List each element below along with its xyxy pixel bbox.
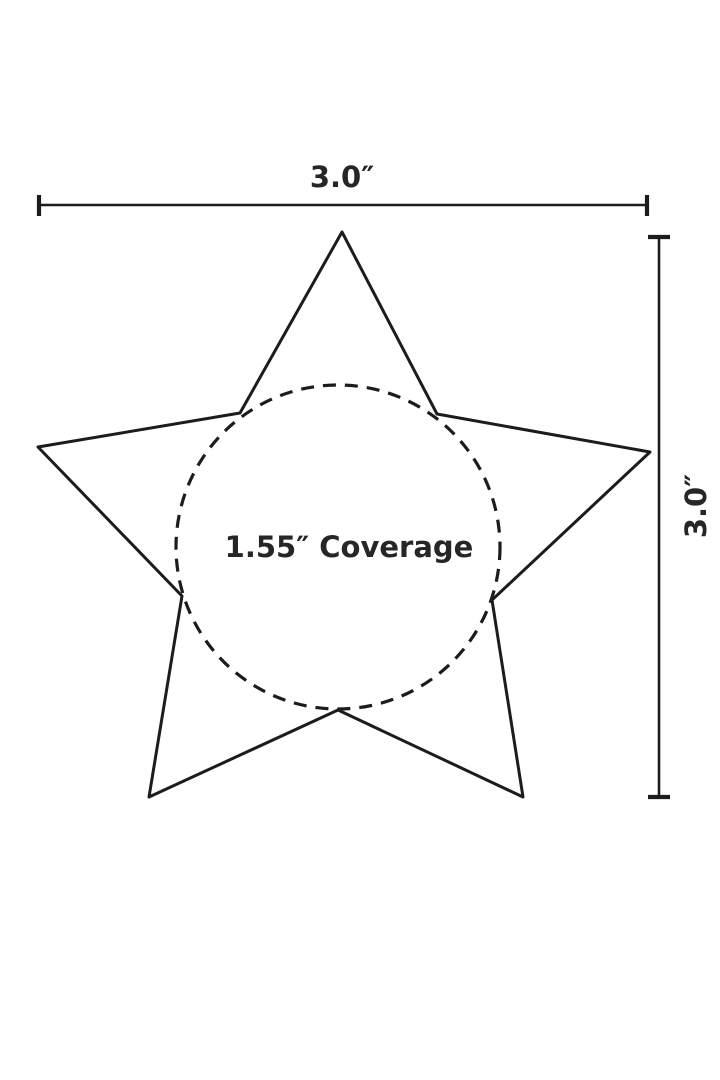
height-dimension: 3.0″	[648, 237, 713, 797]
height-dimension-label: 3.0″	[679, 474, 713, 538]
diagram-canvas: 3.0″ 3.0″ 1.55″ Coverage	[0, 0, 720, 1080]
star-dimension-diagram: 3.0″ 3.0″ 1.55″ Coverage	[0, 0, 720, 1080]
coverage-label: 1.55″ Coverage	[225, 530, 474, 564]
width-dimension-label: 3.0″	[310, 160, 374, 194]
width-dimension: 3.0″	[39, 160, 647, 216]
star-outline	[38, 232, 650, 797]
